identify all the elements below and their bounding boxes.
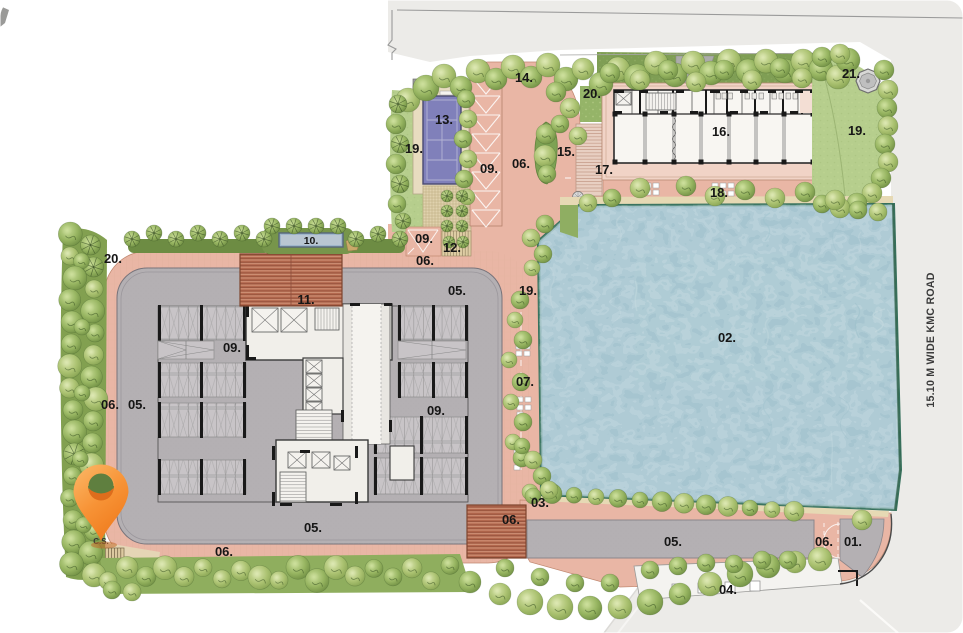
svg-text:05.: 05. (448, 283, 466, 298)
svg-text:02.: 02. (718, 330, 736, 345)
svg-text:14.: 14. (515, 70, 533, 85)
svg-text:09.: 09. (415, 231, 433, 246)
svg-text:17.: 17. (595, 162, 613, 177)
svg-text:21.: 21. (842, 66, 860, 81)
svg-text:11.: 11. (297, 292, 314, 307)
svg-text:19.: 19. (405, 141, 423, 156)
svg-text:06.: 06. (101, 397, 119, 412)
svg-text:19.: 19. (519, 283, 537, 298)
svg-text:01.: 01. (844, 534, 862, 549)
svg-text:15.10 M WIDE KMC ROAD: 15.10 M WIDE KMC ROAD (925, 272, 937, 407)
svg-text:05.: 05. (304, 520, 322, 535)
svg-text:20.: 20. (583, 86, 601, 101)
svg-text:06.: 06. (416, 253, 434, 268)
svg-text:09.: 09. (427, 403, 445, 418)
svg-text:12.: 12. (443, 240, 461, 255)
svg-text:06.: 06. (502, 512, 520, 527)
svg-text:16.: 16. (712, 124, 730, 139)
svg-text:03.: 03. (531, 495, 549, 510)
svg-text:04.: 04. (719, 582, 737, 597)
svg-text:06.: 06. (815, 534, 833, 549)
svg-text:19.: 19. (848, 123, 866, 138)
svg-text:09.: 09. (480, 161, 498, 176)
svg-text:10.: 10. (304, 235, 319, 247)
svg-text:06.: 06. (512, 156, 530, 171)
svg-text:05.: 05. (664, 534, 682, 549)
svg-text:07.: 07. (516, 374, 534, 389)
svg-text:09.: 09. (223, 340, 241, 355)
svg-text:05.: 05. (128, 397, 146, 412)
svg-text:15.: 15. (557, 144, 575, 159)
svg-text:13.: 13. (435, 112, 453, 127)
svg-text:06.: 06. (215, 544, 233, 559)
svg-text:18.: 18. (710, 185, 728, 200)
svg-text:20.: 20. (104, 251, 122, 266)
